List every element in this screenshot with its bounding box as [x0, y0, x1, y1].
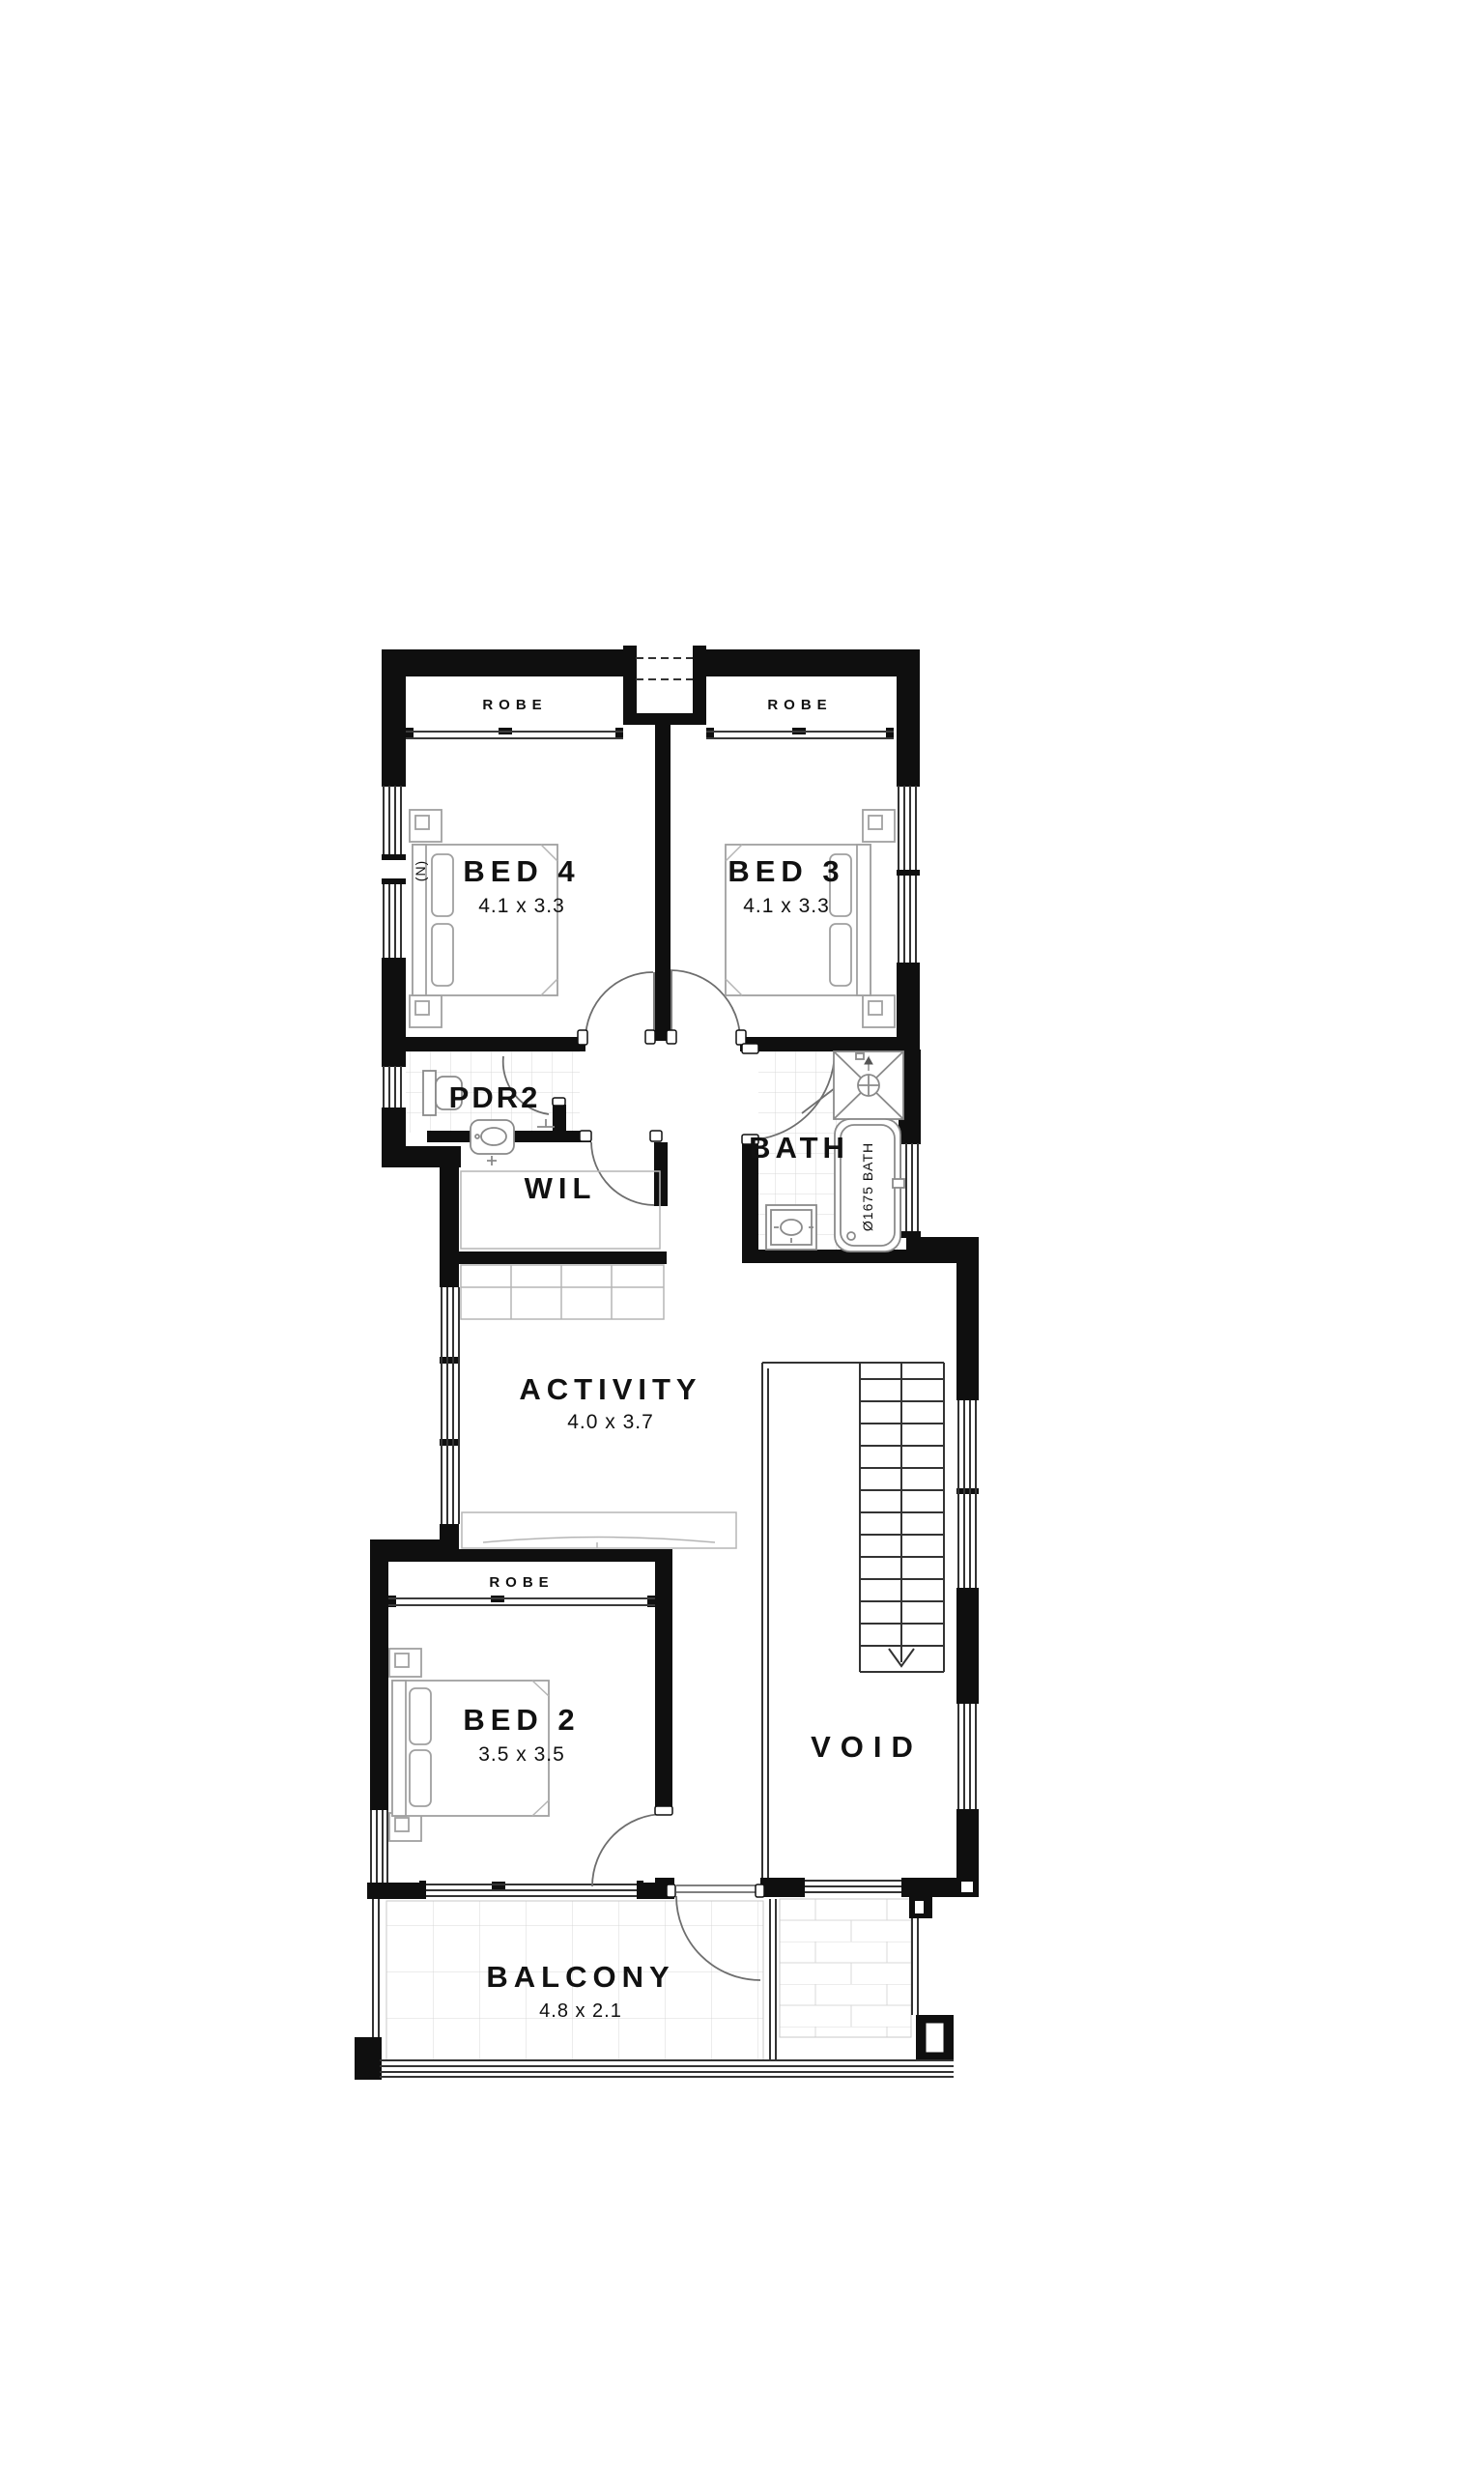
bed4-window — [384, 786, 401, 958]
bed2-room-dims: 3.5 x 3.5 — [478, 1743, 565, 1766]
floor-plan-page: ROBE ROBE BED 4 4.1 x 3.3 BED 3 4.1 x 3.… — [0, 0, 1484, 2474]
bed4-room-label: BED 4 — [463, 854, 580, 888]
wall-slot — [915, 1901, 924, 1913]
bed3-robe-label: ROBE — [767, 697, 832, 713]
bed2-side-window — [371, 1810, 387, 1883]
bed2-robe-label: ROBE — [489, 1574, 554, 1591]
pdr2-window — [384, 1066, 401, 1108]
activity-room-label: ACTIVITY — [519, 1372, 701, 1406]
balcony-brick-tiles — [780, 1899, 911, 2037]
bed4-robe-track — [406, 732, 623, 738]
activity-window — [442, 1287, 459, 1524]
bed2-balcony-window — [426, 1884, 637, 1896]
bath-room-label: BATH — [749, 1131, 849, 1165]
pdr2-room-label: PDR2 — [449, 1080, 541, 1114]
window-note-label: (N) — [413, 860, 428, 881]
balcony-room-dims: 4.8 x 2.1 — [539, 2000, 622, 2022]
activity-desk — [462, 1512, 736, 1548]
bed2-room-label: BED 2 — [463, 1703, 580, 1737]
joinery — [461, 1171, 736, 1548]
activity-room-dims: 4.0 x 3.7 — [567, 1411, 654, 1433]
bed4-door-swing — [585, 972, 654, 1040]
niche-dashed-lines — [636, 658, 693, 679]
bed4-bed-icon — [410, 810, 557, 1027]
bed3-room-label: BED 3 — [728, 854, 844, 888]
wall-slot — [961, 1882, 973, 1892]
bed3-bed-icon — [726, 810, 895, 1027]
wil-room-label: WIL — [525, 1171, 597, 1205]
bed-symbols — [389, 810, 895, 1841]
balcony-room-label: BALCONY — [486, 1960, 674, 1994]
void-balcony-window — [805, 1881, 901, 1892]
bed2-door-swing — [592, 1814, 665, 1886]
linen-grid — [461, 1265, 664, 1319]
vanity-icon — [766, 1205, 816, 1250]
floor-plan: ROBE ROBE BED 4 4.1 x 3.3 BED 3 4.1 x 3.… — [0, 0, 1484, 2474]
bed4-robe-label: ROBE — [482, 697, 547, 713]
void-room-label: VOID — [811, 1730, 923, 1764]
void-window — [958, 1704, 976, 1809]
bathtub-size-label: Ø1675 BATH — [860, 1142, 875, 1231]
wil-door-swing — [591, 1142, 654, 1205]
bed2-robe-track — [388, 1598, 655, 1605]
shower-icon — [834, 1051, 903, 1119]
bed3-room-dims: 4.1 x 3.3 — [743, 895, 830, 917]
bed4-room-dims: 4.1 x 3.3 — [478, 895, 565, 917]
balcony-column — [926, 2023, 944, 2053]
